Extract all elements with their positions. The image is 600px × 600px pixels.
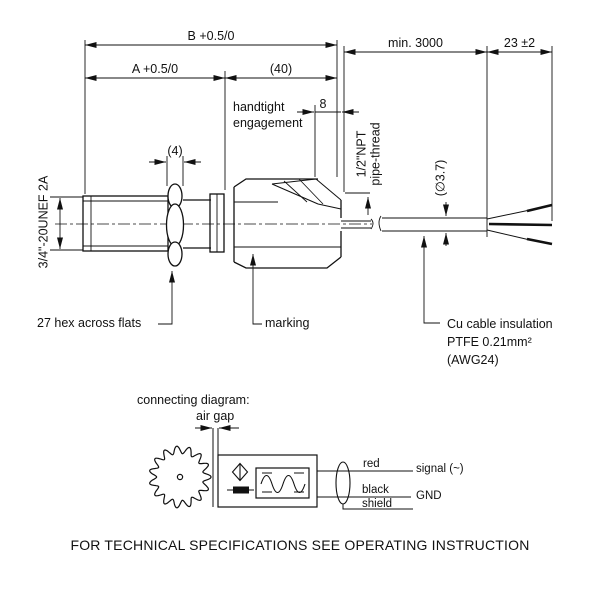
pipe-thread-label: 1/2"NPT pipe-thread — [356, 122, 383, 185]
magnet-symbol — [227, 487, 254, 494]
collar — [210, 194, 224, 252]
wire-red-label: red — [363, 458, 380, 471]
marking-label: marking — [265, 316, 309, 331]
dim-23-label: 23 ±2 — [487, 36, 552, 51]
wire-shield-label: shield — [362, 498, 392, 511]
wire-ends — [487, 205, 552, 244]
hex-body — [234, 179, 341, 268]
sensor-outline — [83, 179, 552, 268]
cable-ellipse — [336, 462, 350, 504]
hex-across-flats-label: 27 hex across flats — [37, 316, 141, 331]
sensor-box — [218, 455, 317, 507]
npt-cut — [272, 179, 341, 209]
cable — [341, 216, 487, 231]
wire-black-label: black — [362, 484, 389, 497]
drawing-canvas — [0, 0, 600, 600]
dim-a-label: A +0.5/0 — [85, 62, 225, 77]
gear-icon — [150, 446, 211, 508]
dim-4-label: (4) — [155, 144, 195, 159]
signal-waveform — [261, 473, 305, 493]
gear-center — [177, 474, 182, 479]
dimension-lines — [60, 45, 552, 428]
gnd-out-label: GND — [416, 490, 442, 503]
cable-dia-label: (∅3.7) — [434, 160, 449, 197]
dim-8-label: 8 — [311, 97, 335, 112]
thread-spec-label: 3/4"-20UNEF 2A — [37, 176, 52, 269]
thread-rod — [83, 196, 168, 251]
footer-note: FOR TECHNICAL SPECIFICATIONS SEE OPERATI… — [0, 537, 600, 553]
connecting-diagram-title: connecting diagram: — [137, 393, 250, 408]
dim-40-label: (40) — [225, 62, 337, 77]
coil-symbol — [233, 464, 248, 481]
signal-out-label: signal (~) — [416, 463, 464, 476]
air-gap-lines — [213, 428, 218, 507]
jam-nut — [167, 184, 184, 266]
dim-b-label: B +0.5/0 — [85, 29, 337, 44]
leader-lines — [158, 236, 440, 324]
handtight-label: handtight engagement — [233, 99, 303, 131]
cable-insulation-label: Cu cable insulation PTFE 0.21mm² (AWG24) — [447, 315, 553, 369]
technical-drawing-page: B +0.5/0 A +0.5/0 (40) min. 3000 23 ±2 8… — [0, 0, 600, 600]
dim-min3000-label: min. 3000 — [344, 36, 487, 51]
air-gap-label: air gap — [196, 409, 234, 424]
